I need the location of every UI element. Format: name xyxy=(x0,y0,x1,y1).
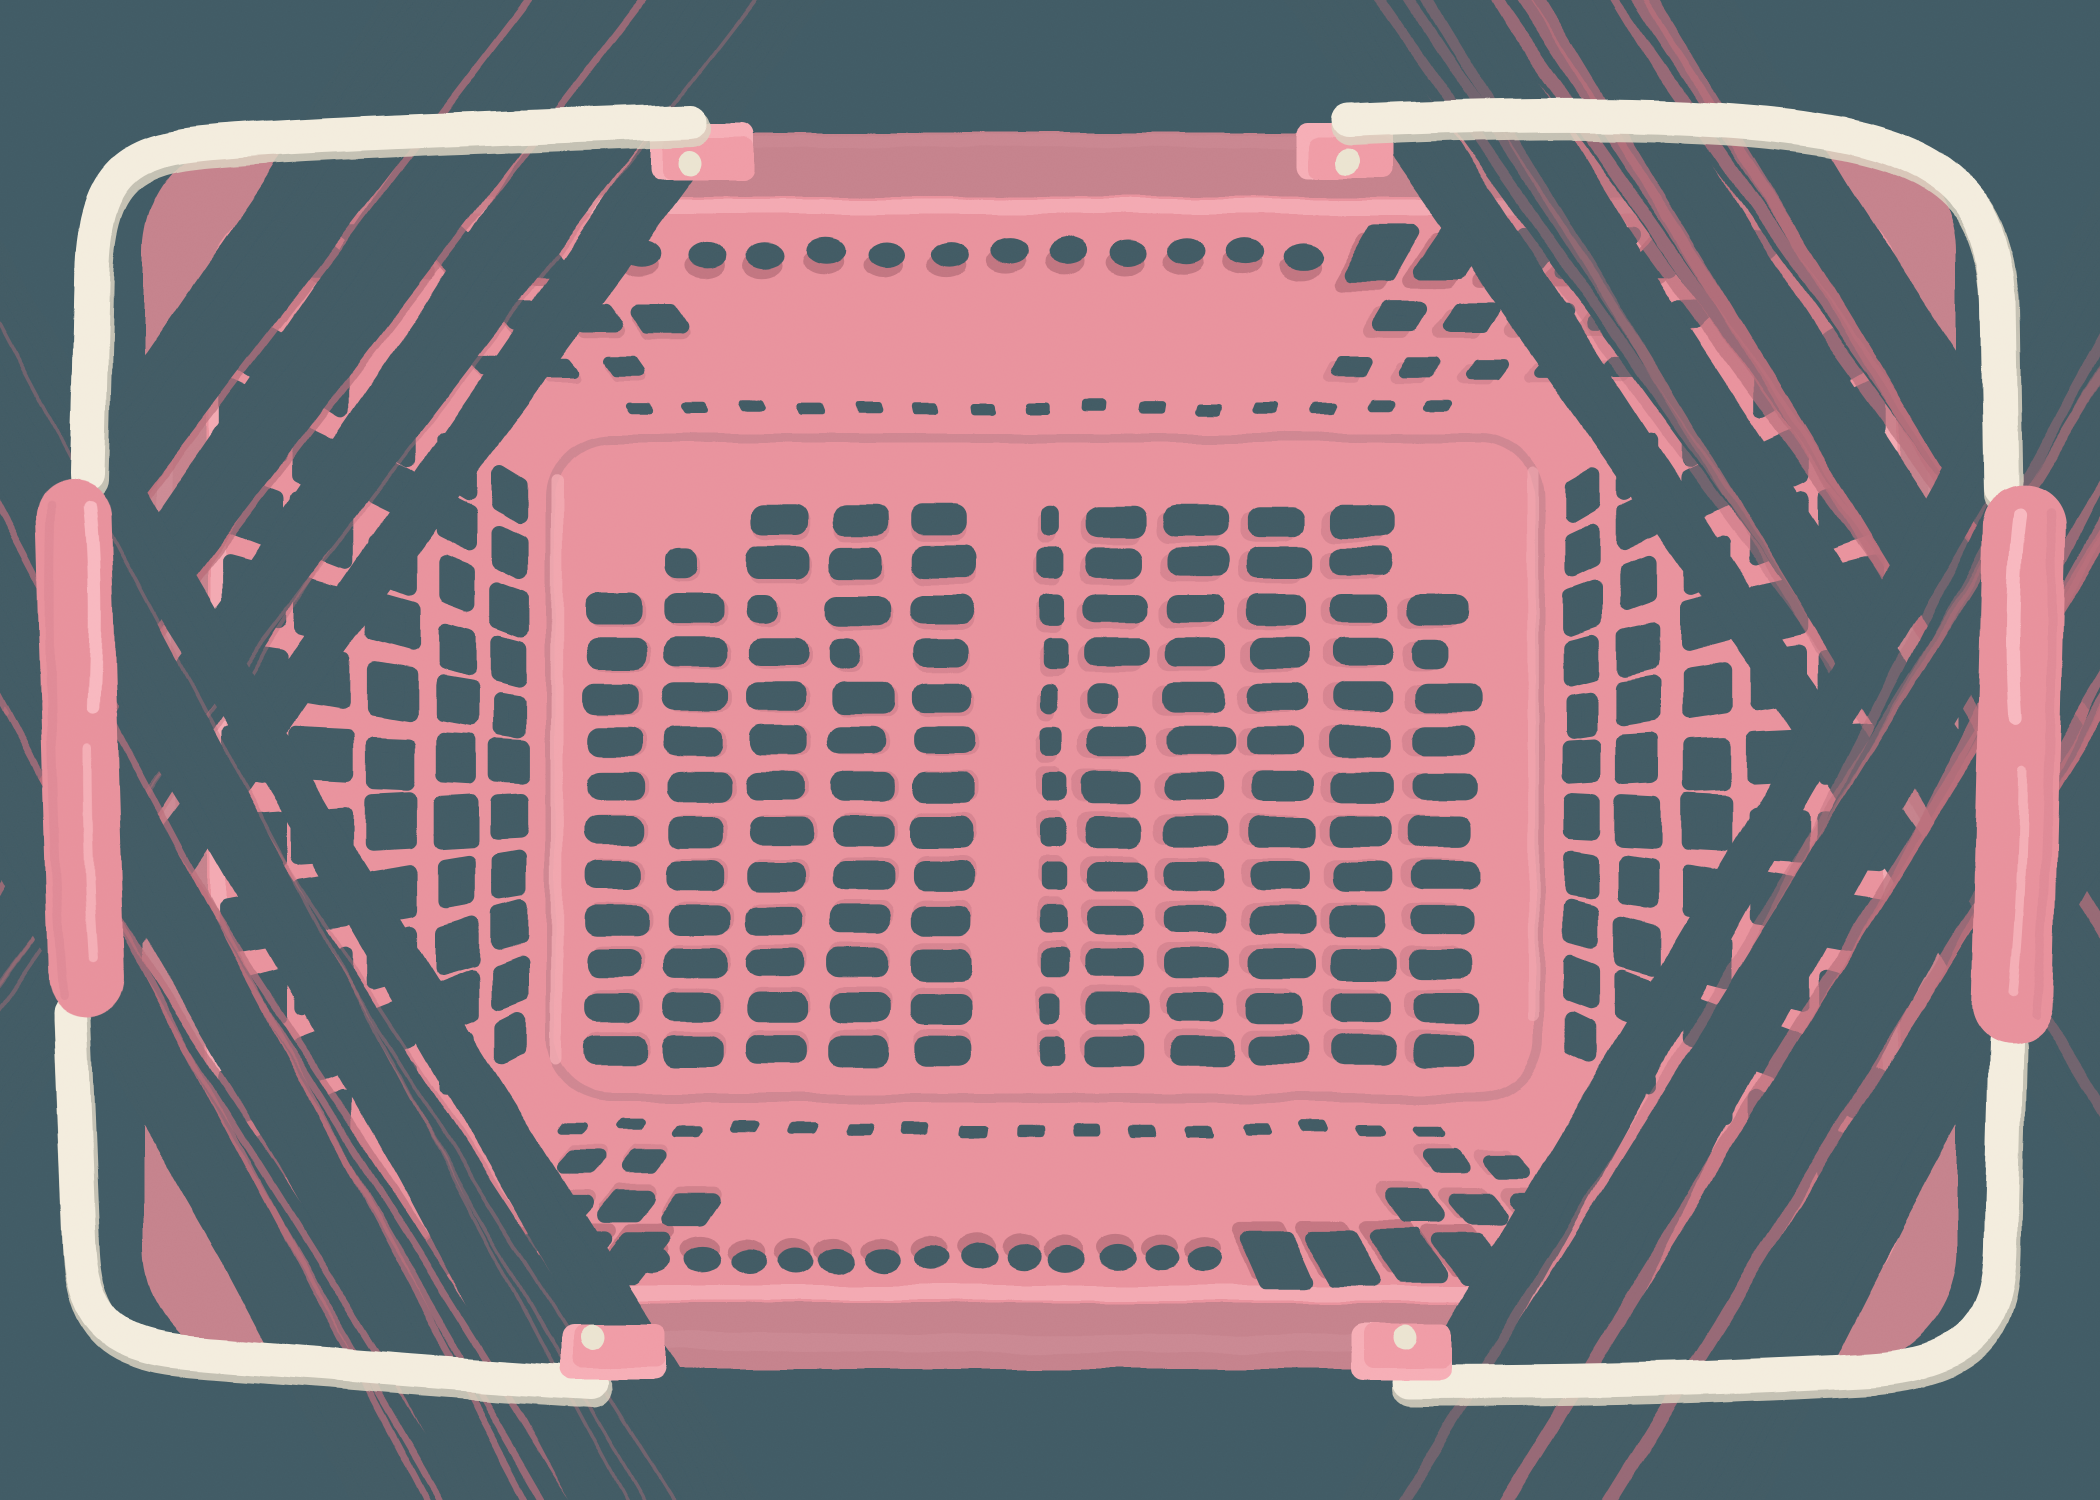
illustration-canvas xyxy=(0,0,2100,1500)
grain-texture xyxy=(0,0,2100,1500)
basket-illustration xyxy=(0,0,2100,1500)
